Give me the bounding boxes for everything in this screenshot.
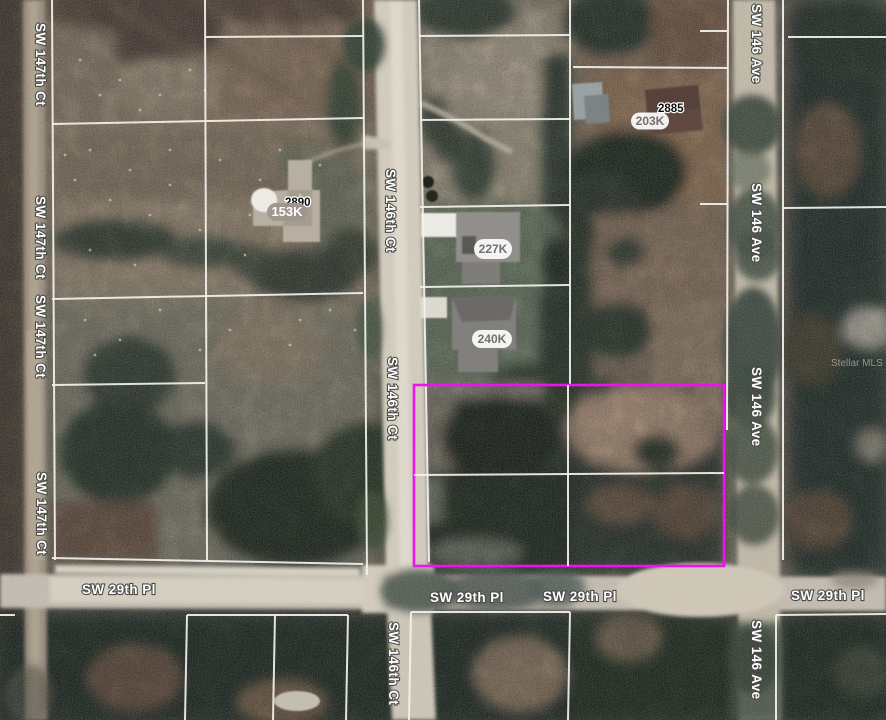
svg-text:SW 146 Ave: SW 146 Ave xyxy=(749,620,764,700)
svg-text:SW 147th Ct: SW 147th Ct xyxy=(33,23,48,106)
svg-text:SW 147th Ct: SW 147th Ct xyxy=(34,472,49,555)
svg-text:SW 147th Ct: SW 147th Ct xyxy=(33,295,48,378)
svg-text:153K: 153K xyxy=(271,204,303,219)
svg-text:227K: 227K xyxy=(479,242,508,256)
svg-text:203K: 203K xyxy=(636,114,665,128)
svg-text:SW 146 Ave: SW 146 Ave xyxy=(749,4,764,84)
svg-text:SW 146th Ct: SW 146th Ct xyxy=(386,622,401,705)
svg-text:SW 146th Ct: SW 146th Ct xyxy=(385,357,400,440)
svg-text:Stellar MLS: Stellar MLS xyxy=(831,358,883,369)
svg-text:SW 146th Ct: SW 146th Ct xyxy=(383,169,398,252)
svg-text:SW 29th Pl: SW 29th Pl xyxy=(543,589,617,604)
svg-text:240K: 240K xyxy=(478,332,507,346)
svg-text:SW 147th Ct: SW 147th Ct xyxy=(33,196,48,279)
svg-text:SW 146 Ave: SW 146 Ave xyxy=(749,367,764,447)
svg-text:SW 29th Pl: SW 29th Pl xyxy=(430,590,504,605)
svg-text:SW 29th Pl: SW 29th Pl xyxy=(82,582,156,597)
svg-text:SW 29th Pl: SW 29th Pl xyxy=(791,588,865,603)
svg-text:SW 146 Ave: SW 146 Ave xyxy=(749,183,764,263)
